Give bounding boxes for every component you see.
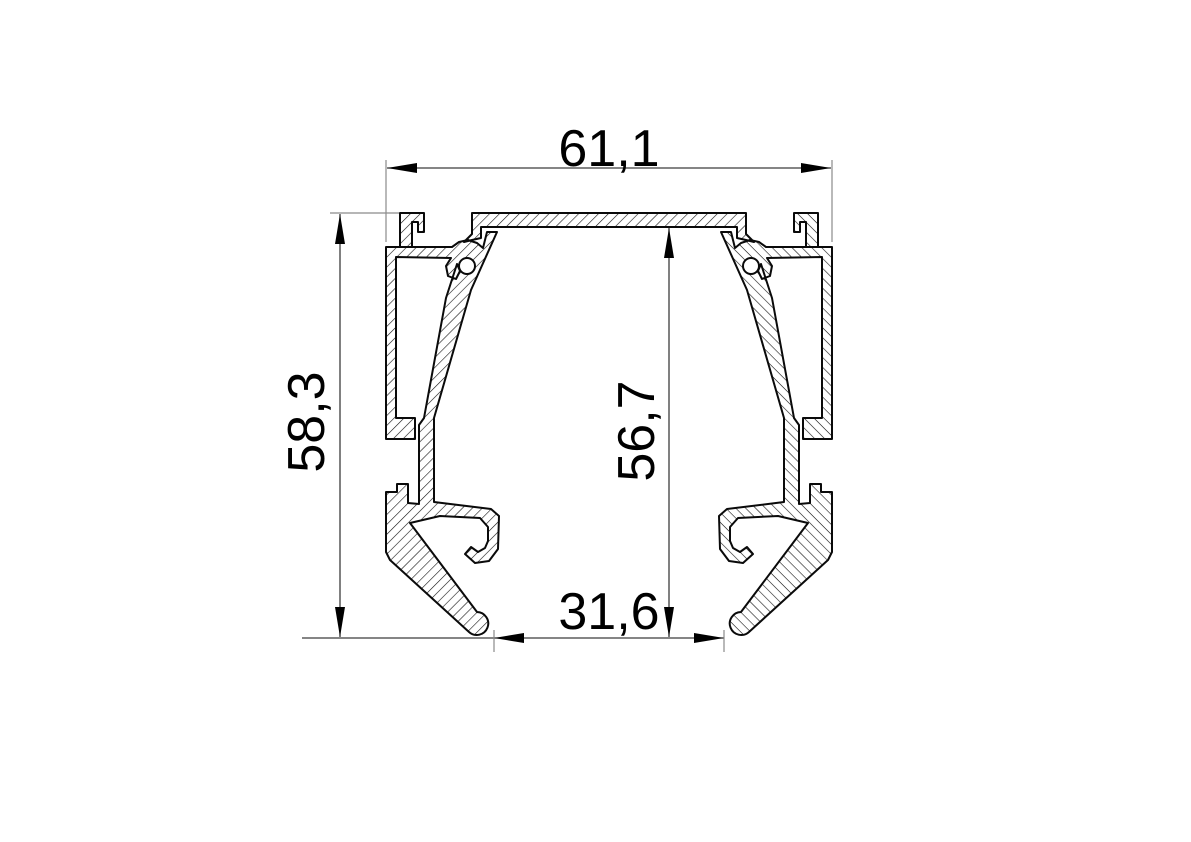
profile-tslot-ear — [400, 213, 424, 247]
profile-right-half — [719, 213, 832, 635]
profile-tslot-ear — [794, 213, 818, 247]
profile-side-wall-assembly — [719, 232, 832, 635]
arrowhead-down — [335, 607, 345, 637]
arrowhead-right — [694, 633, 724, 643]
arrowhead-down — [664, 607, 674, 637]
dimension-inner-height: 56,7 — [608, 228, 674, 637]
technical-drawing-canvas: 61,1 58,3 56,7 31,6 — [0, 0, 1191, 842]
profile-top-plate — [464, 213, 754, 242]
dimension-overall-height: 58,3 — [278, 213, 399, 637]
arrowhead-right — [801, 163, 831, 173]
dimension-bottom-opening: 31,6 — [302, 583, 724, 652]
profile-left-half — [386, 213, 499, 635]
dimension-text-overall-height: 58,3 — [278, 371, 336, 472]
dimension-text-inner-height: 56,7 — [608, 380, 666, 481]
dimension-text-overall-width: 61,1 — [558, 120, 659, 178]
drawing-page: 61,1 58,3 56,7 31,6 — [0, 0, 1191, 842]
arrowhead-up — [335, 214, 345, 244]
arrowhead-left — [494, 633, 524, 643]
profile-side-wall-assembly — [386, 232, 499, 635]
dimension-text-bottom-opening: 31,6 — [558, 583, 659, 641]
arrowhead-up — [664, 228, 674, 258]
arrowhead-left — [387, 163, 417, 173]
